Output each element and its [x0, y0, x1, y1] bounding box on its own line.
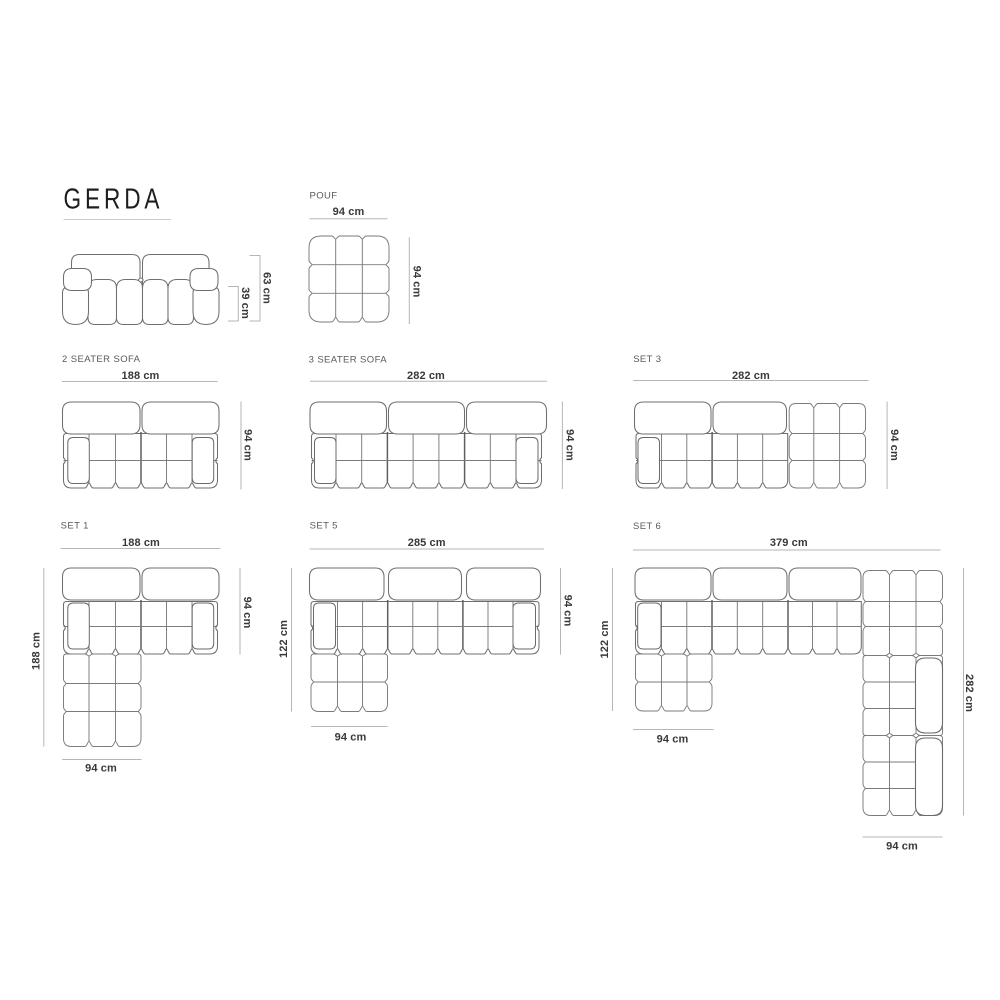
svg-text:POUF: POUF	[310, 191, 338, 202]
svg-text:282 cm: 282 cm	[407, 370, 445, 382]
svg-text:94 cm: 94 cm	[333, 206, 365, 218]
svg-text:94 cm: 94 cm	[410, 266, 422, 298]
svg-text:94 cm: 94 cm	[657, 734, 689, 746]
svg-text:282 cm: 282 cm	[963, 674, 975, 712]
svg-text:94 cm: 94 cm	[241, 597, 253, 629]
svg-text:188 cm: 188 cm	[122, 537, 160, 549]
svg-text:SET 3: SET 3	[633, 354, 661, 365]
svg-text:94 cm: 94 cm	[562, 595, 574, 627]
svg-text:63 cm: 63 cm	[261, 272, 273, 304]
svg-text:94 cm: 94 cm	[335, 732, 367, 744]
svg-text:3 SEATER SOFA: 3 SEATER SOFA	[309, 354, 388, 365]
svg-text:94 cm: 94 cm	[886, 841, 918, 853]
svg-text:GERDA: GERDA	[64, 182, 164, 215]
svg-text:SET 1: SET 1	[61, 520, 89, 531]
svg-text:122 cm: 122 cm	[278, 620, 290, 658]
svg-text:122 cm: 122 cm	[599, 620, 611, 658]
svg-text:SET 6: SET 6	[633, 521, 661, 532]
svg-text:94 cm: 94 cm	[563, 429, 575, 461]
svg-text:94 cm: 94 cm	[242, 429, 254, 461]
svg-text:SET 5: SET 5	[310, 520, 338, 531]
svg-text:2 SEATER SOFA: 2 SEATER SOFA	[62, 354, 141, 365]
svg-text:379 cm: 379 cm	[770, 537, 808, 549]
svg-text:188 cm: 188 cm	[30, 632, 42, 670]
svg-text:39 cm: 39 cm	[239, 287, 251, 319]
svg-text:188 cm: 188 cm	[122, 370, 160, 382]
svg-text:94 cm: 94 cm	[85, 763, 117, 775]
svg-text:285 cm: 285 cm	[408, 537, 446, 549]
svg-text:94 cm: 94 cm	[888, 429, 900, 461]
